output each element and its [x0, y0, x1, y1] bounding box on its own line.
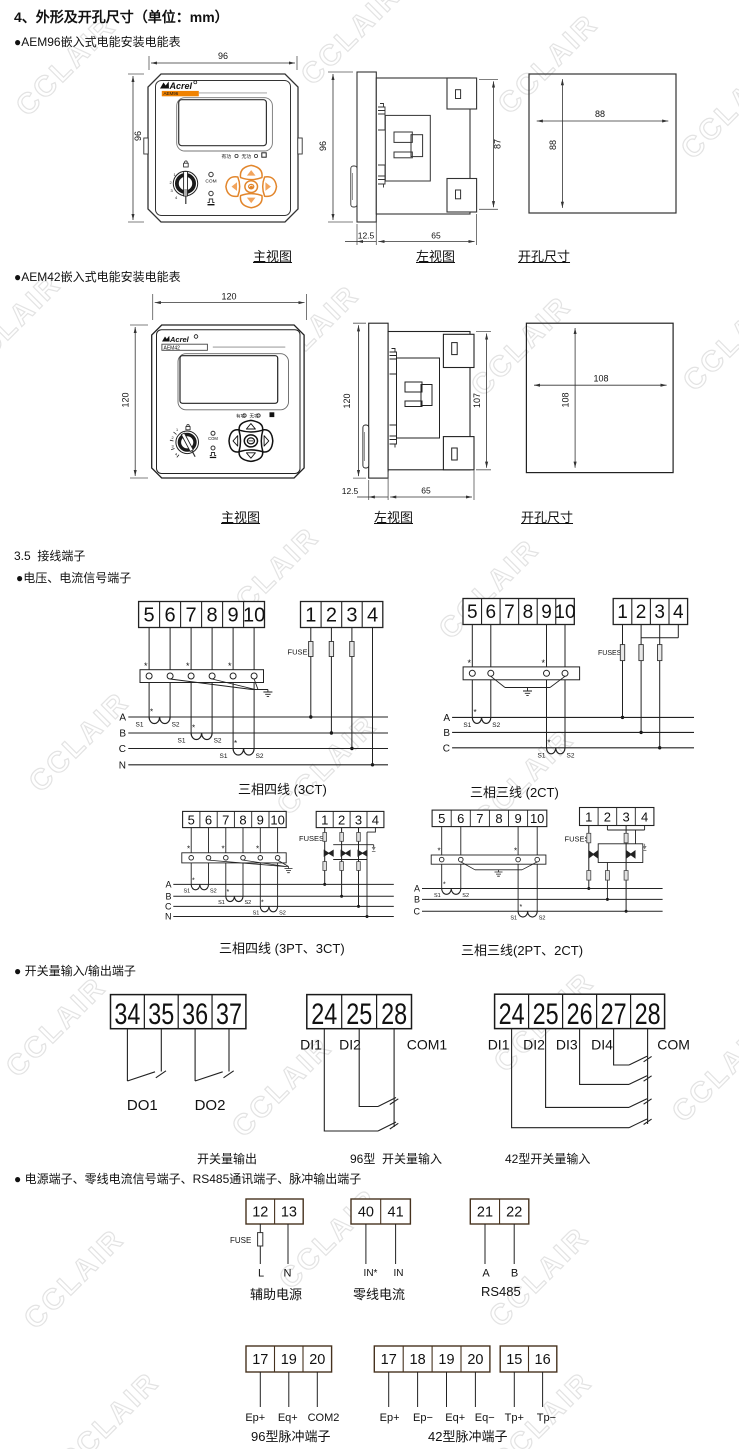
svg-text:C: C — [165, 902, 172, 912]
svg-text:3: 3 — [172, 445, 174, 449]
svg-text:*: * — [227, 889, 230, 896]
svg-text:28: 28 — [635, 998, 661, 1031]
svg-text:S2: S2 — [210, 888, 217, 894]
svg-text:Acrel: Acrel — [169, 81, 193, 91]
svg-text:B: B — [443, 728, 450, 739]
svg-text:17: 17 — [381, 1352, 397, 1368]
svg-text:7: 7 — [222, 812, 229, 827]
svg-text:*: * — [192, 877, 195, 884]
svg-text:S2: S2 — [539, 916, 546, 922]
svg-text:B: B — [119, 729, 126, 740]
svg-text:Tp−: Tp− — [537, 1412, 556, 1424]
svg-text:12.5: 12.5 — [342, 486, 359, 496]
svg-text:9: 9 — [257, 812, 264, 827]
svg-text:L: L — [258, 1268, 264, 1280]
svg-text:1: 1 — [176, 428, 178, 432]
svg-text:17: 17 — [252, 1352, 268, 1368]
svg-text:3: 3 — [355, 812, 362, 827]
svg-text:16: 16 — [535, 1352, 551, 1368]
svg-text:S1: S1 — [218, 900, 225, 906]
svg-text:S2: S2 — [245, 900, 252, 906]
svg-text:Eq+: Eq+ — [445, 1412, 465, 1424]
svg-text:1: 1 — [305, 605, 316, 627]
svg-text:96: 96 — [218, 51, 228, 61]
svg-text:21: 21 — [477, 1205, 493, 1221]
svg-text:A: A — [119, 713, 126, 724]
svg-text:10: 10 — [530, 811, 544, 826]
svg-text:1: 1 — [585, 810, 592, 825]
svg-text:Acrel: Acrel — [169, 335, 190, 344]
svg-text:120: 120 — [121, 392, 131, 407]
svg-text:*: * — [542, 658, 546, 668]
svg-text:7: 7 — [504, 602, 515, 623]
svg-text:35: 35 — [148, 998, 174, 1031]
svg-text:5: 5 — [467, 602, 478, 623]
svg-text:*: * — [222, 845, 225, 854]
svg-text:S1: S1 — [253, 910, 260, 916]
svg-text:9: 9 — [228, 605, 239, 627]
svg-text:88: 88 — [595, 109, 605, 119]
svg-text:4: 4 — [367, 605, 378, 627]
svg-text:FUSE: FUSE — [230, 1236, 251, 1245]
svg-text:DO1: DO1 — [127, 1097, 158, 1114]
svg-text:65: 65 — [431, 231, 441, 241]
svg-text:*: * — [192, 724, 195, 733]
svg-text:*: * — [150, 708, 153, 717]
svg-text:20: 20 — [309, 1352, 325, 1368]
svg-text:无功: 无功 — [250, 413, 259, 420]
svg-text:DI1: DI1 — [300, 1037, 322, 1053]
svg-text:S1: S1 — [183, 888, 190, 894]
svg-text:120: 120 — [342, 393, 352, 408]
svg-text:*: * — [548, 738, 551, 747]
svg-text:2: 2 — [604, 810, 611, 825]
svg-text:DI2: DI2 — [339, 1037, 361, 1053]
svg-text:B: B — [511, 1268, 518, 1280]
svg-text:S1: S1 — [136, 722, 144, 729]
svg-text:*: * — [186, 661, 190, 671]
svg-text:Eq+: Eq+ — [278, 1412, 298, 1424]
svg-text:8: 8 — [523, 602, 534, 623]
svg-text:5: 5 — [188, 812, 195, 827]
svg-text:1: 1 — [617, 602, 628, 623]
svg-text:6: 6 — [165, 605, 176, 627]
svg-text:108: 108 — [593, 374, 608, 384]
svg-text:*: * — [187, 845, 190, 854]
svg-text:88: 88 — [548, 140, 558, 150]
svg-text:S2: S2 — [492, 722, 500, 729]
svg-text:FUSES: FUSES — [598, 650, 622, 657]
svg-text:C: C — [414, 906, 421, 916]
svg-text:*: * — [468, 658, 472, 668]
svg-text:10: 10 — [243, 605, 265, 627]
svg-text:*: * — [474, 708, 477, 717]
svg-text:*: * — [520, 904, 523, 911]
svg-text:108: 108 — [561, 392, 571, 407]
svg-text:2: 2 — [326, 605, 337, 627]
svg-text:6: 6 — [205, 812, 212, 827]
svg-text:5: 5 — [438, 811, 445, 826]
svg-text:7: 7 — [186, 605, 197, 627]
svg-text:DI2: DI2 — [523, 1037, 545, 1053]
svg-text:24: 24 — [311, 998, 337, 1031]
svg-text:DI3: DI3 — [556, 1037, 578, 1053]
svg-text:S2: S2 — [214, 738, 222, 745]
svg-text:FUSES: FUSES — [299, 834, 324, 843]
svg-text:12.5: 12.5 — [358, 231, 375, 241]
svg-text:Ep+: Ep+ — [380, 1412, 400, 1424]
svg-text:9: 9 — [541, 602, 552, 623]
svg-text:COM: COM — [208, 436, 218, 441]
svg-text:15: 15 — [506, 1352, 522, 1368]
svg-text:5: 5 — [144, 605, 155, 627]
svg-text:FUSES: FUSES — [565, 835, 590, 844]
svg-text:25: 25 — [346, 998, 372, 1031]
svg-text:1: 1 — [321, 812, 328, 827]
svg-text:65: 65 — [421, 486, 431, 496]
svg-text:*: * — [261, 899, 264, 906]
svg-text:DO2: DO2 — [195, 1097, 226, 1114]
svg-text:N: N — [119, 760, 126, 771]
svg-text:C: C — [119, 744, 126, 755]
svg-text:3: 3 — [622, 810, 629, 825]
svg-text:DI1: DI1 — [488, 1037, 510, 1053]
svg-text:37: 37 — [216, 998, 242, 1031]
svg-text:N: N — [165, 912, 172, 922]
svg-text:4: 4 — [175, 453, 177, 457]
svg-text:C: C — [443, 743, 450, 754]
svg-text:S2: S2 — [279, 910, 286, 916]
svg-text:8: 8 — [207, 605, 218, 627]
svg-text:4: 4 — [673, 602, 684, 623]
svg-text:A: A — [165, 880, 171, 890]
svg-text:96: 96 — [133, 131, 143, 141]
svg-text:34: 34 — [114, 998, 140, 1031]
svg-text:18: 18 — [410, 1352, 426, 1368]
svg-text:41: 41 — [388, 1205, 404, 1221]
svg-text:28: 28 — [381, 998, 407, 1031]
svg-text:*: * — [228, 661, 232, 671]
svg-text:120: 120 — [221, 292, 236, 302]
svg-text:20: 20 — [467, 1352, 483, 1368]
svg-text:19: 19 — [281, 1352, 297, 1368]
svg-text:2: 2 — [338, 812, 345, 827]
svg-text:Ep+: Ep+ — [245, 1412, 265, 1424]
svg-text:8: 8 — [239, 812, 246, 827]
svg-text:COM: COM — [205, 179, 216, 185]
svg-text:*: * — [438, 847, 441, 856]
svg-text:3: 3 — [654, 602, 665, 623]
svg-text:27: 27 — [601, 998, 627, 1031]
svg-text:3: 3 — [346, 605, 357, 627]
svg-text:40: 40 — [358, 1205, 374, 1221]
svg-text:*: * — [234, 739, 237, 748]
svg-text:Ep−: Ep− — [413, 1412, 433, 1424]
svg-text:*: * — [256, 845, 259, 854]
svg-text:Tp+: Tp+ — [505, 1412, 524, 1424]
svg-text:8: 8 — [495, 811, 502, 826]
svg-text:DI4: DI4 — [591, 1037, 613, 1053]
svg-text:B: B — [165, 891, 171, 901]
svg-text:N: N — [284, 1268, 292, 1280]
svg-text:96: 96 — [318, 141, 328, 151]
svg-text:13: 13 — [281, 1205, 297, 1221]
svg-text:IN: IN — [394, 1268, 404, 1279]
svg-text:B: B — [414, 895, 420, 905]
svg-text:24: 24 — [499, 998, 525, 1031]
svg-text:4: 4 — [372, 812, 379, 827]
svg-text:107: 107 — [472, 393, 482, 408]
svg-text:S2: S2 — [256, 753, 264, 760]
svg-text:A: A — [443, 713, 450, 724]
svg-text:COM2: COM2 — [308, 1412, 340, 1424]
svg-text:Eq−: Eq− — [475, 1412, 495, 1424]
svg-text:AEM96: AEM96 — [164, 91, 179, 96]
svg-text:2: 2 — [636, 602, 647, 623]
svg-text:6: 6 — [457, 811, 464, 826]
svg-text:25: 25 — [533, 998, 559, 1031]
svg-text:S1: S1 — [538, 752, 546, 759]
svg-text:有功: 有功 — [222, 153, 232, 160]
svg-text:12: 12 — [252, 1205, 268, 1221]
svg-text:4: 4 — [641, 810, 648, 825]
svg-text:无功: 无功 — [242, 153, 252, 160]
svg-text:S1: S1 — [463, 722, 471, 729]
svg-text:*: * — [443, 882, 446, 889]
svg-text:*: * — [514, 847, 517, 856]
svg-text:S2: S2 — [567, 752, 575, 759]
svg-text:6: 6 — [486, 602, 497, 623]
svg-text:2: 2 — [172, 436, 174, 440]
svg-text:S1: S1 — [220, 753, 228, 760]
svg-text:10: 10 — [270, 812, 284, 827]
svg-text:87: 87 — [493, 139, 503, 149]
svg-text:S1: S1 — [434, 893, 441, 899]
svg-text:COM1: COM1 — [407, 1037, 448, 1053]
svg-text:36: 36 — [182, 998, 208, 1031]
svg-text:22: 22 — [506, 1205, 522, 1221]
svg-text:26: 26 — [567, 998, 593, 1031]
svg-text:IN*: IN* — [364, 1268, 378, 1279]
svg-text:*: * — [144, 661, 148, 671]
svg-text:S1: S1 — [510, 916, 517, 922]
svg-text:S2: S2 — [172, 722, 180, 729]
svg-text:9: 9 — [514, 811, 521, 826]
svg-text:S1: S1 — [178, 738, 186, 745]
svg-text:A: A — [414, 884, 420, 894]
svg-text:19: 19 — [438, 1352, 454, 1368]
svg-text:A: A — [482, 1268, 490, 1280]
svg-text:COM: COM — [657, 1037, 690, 1053]
svg-text:S2: S2 — [462, 893, 469, 899]
svg-text:AEM42: AEM42 — [164, 345, 181, 351]
svg-text:10: 10 — [554, 602, 575, 623]
svg-text:7: 7 — [476, 811, 483, 826]
